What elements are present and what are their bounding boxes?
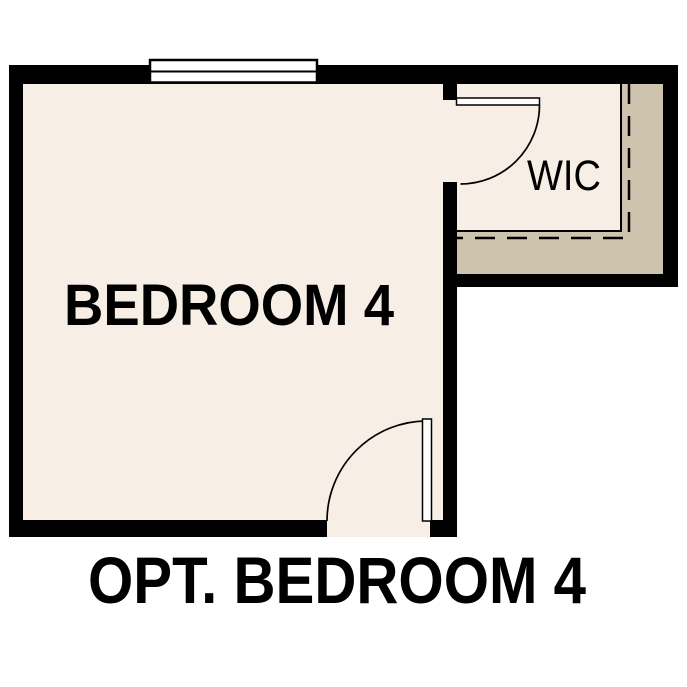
plan-caption: OPT. BEDROOM 4 xyxy=(88,543,586,617)
wall-wic-bottom xyxy=(443,274,678,287)
wall-left xyxy=(9,65,23,537)
wall-bottom-door-jamb xyxy=(430,520,457,537)
wall-right xyxy=(663,65,678,287)
floor-plan: BEDROOM 4 WIC OPT. BEDROOM 4 xyxy=(0,0,687,687)
wall-bottom xyxy=(9,520,327,537)
wall-top xyxy=(9,65,678,84)
window-icon xyxy=(150,60,317,83)
wall-bedroom-right xyxy=(443,182,457,537)
bedroom-label: BEDROOM 4 xyxy=(64,273,394,338)
wic-door-leaf xyxy=(457,98,540,105)
floor-plan-canvas: BEDROOM 4 WIC OPT. BEDROOM 4 xyxy=(0,0,687,687)
wall-wic-jamb-top xyxy=(443,84,457,100)
entry-door-leaf xyxy=(423,419,432,521)
wic-label: WIC xyxy=(527,152,601,200)
